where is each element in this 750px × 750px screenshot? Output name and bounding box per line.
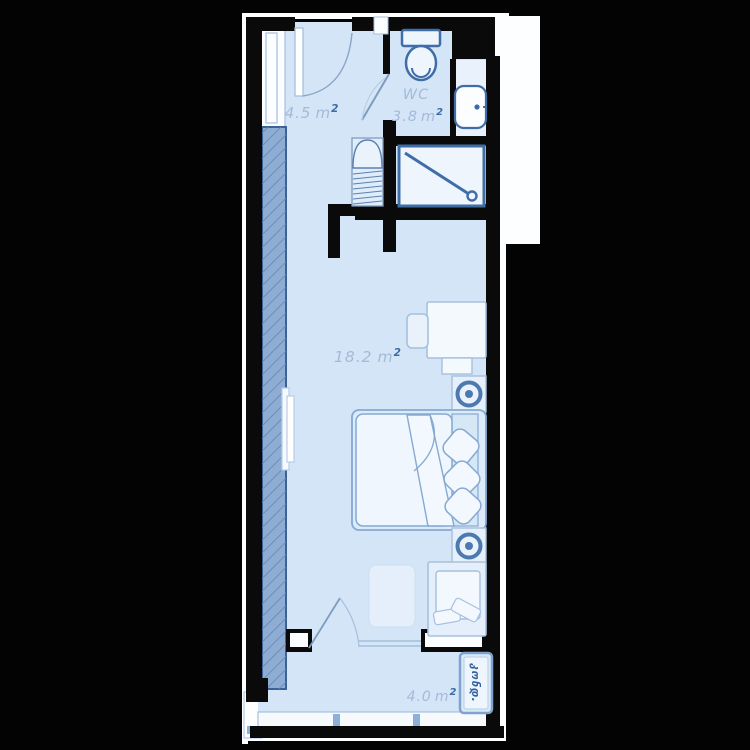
wall-left <box>246 17 262 697</box>
wall-top-mid <box>352 17 374 31</box>
wall-right <box>486 56 500 731</box>
wardrobe-icon <box>352 138 383 206</box>
nightstand-lamp-lower <box>452 528 486 564</box>
rug <box>369 565 415 627</box>
hall-window <box>258 28 285 128</box>
shaft-niche <box>374 17 388 34</box>
ac-unit: კონდ. <box>460 653 492 713</box>
ac-unit-label: კონდ. <box>469 662 482 703</box>
armchair-icon <box>428 562 486 636</box>
sink-icon <box>455 86 487 128</box>
wall-wc-partition <box>383 28 390 74</box>
living-area-label: 18.2m2 <box>334 347 402 366</box>
tv-icon <box>282 388 294 470</box>
chair-icon <box>407 314 428 348</box>
entry-door-leaf <box>295 28 303 96</box>
floor-plan-drawing: კონდ. 4.5m2 WC 3.8m2 18.2m2 4.0m2 <box>0 0 750 750</box>
nightstand-lamp-upper <box>452 376 486 412</box>
corner-notch <box>495 16 540 244</box>
wall-bottom-left-chunk <box>246 678 268 702</box>
shower-icon <box>399 146 484 206</box>
divider-left-core <box>290 633 308 647</box>
toilet-icon <box>402 30 440 80</box>
bed-icon <box>352 410 486 530</box>
window-mullion <box>333 714 340 726</box>
wall-stub <box>328 204 340 258</box>
wall-corner-chunk <box>452 17 495 59</box>
floor-plan-stage: კონდ. 4.5m2 WC 3.8m2 18.2m2 4.0m2 <box>0 0 750 750</box>
window-mullion <box>413 714 420 726</box>
wc-name-label: WC <box>403 87 429 103</box>
balcony-window-band <box>258 712 490 728</box>
wall-bottom <box>250 726 504 738</box>
